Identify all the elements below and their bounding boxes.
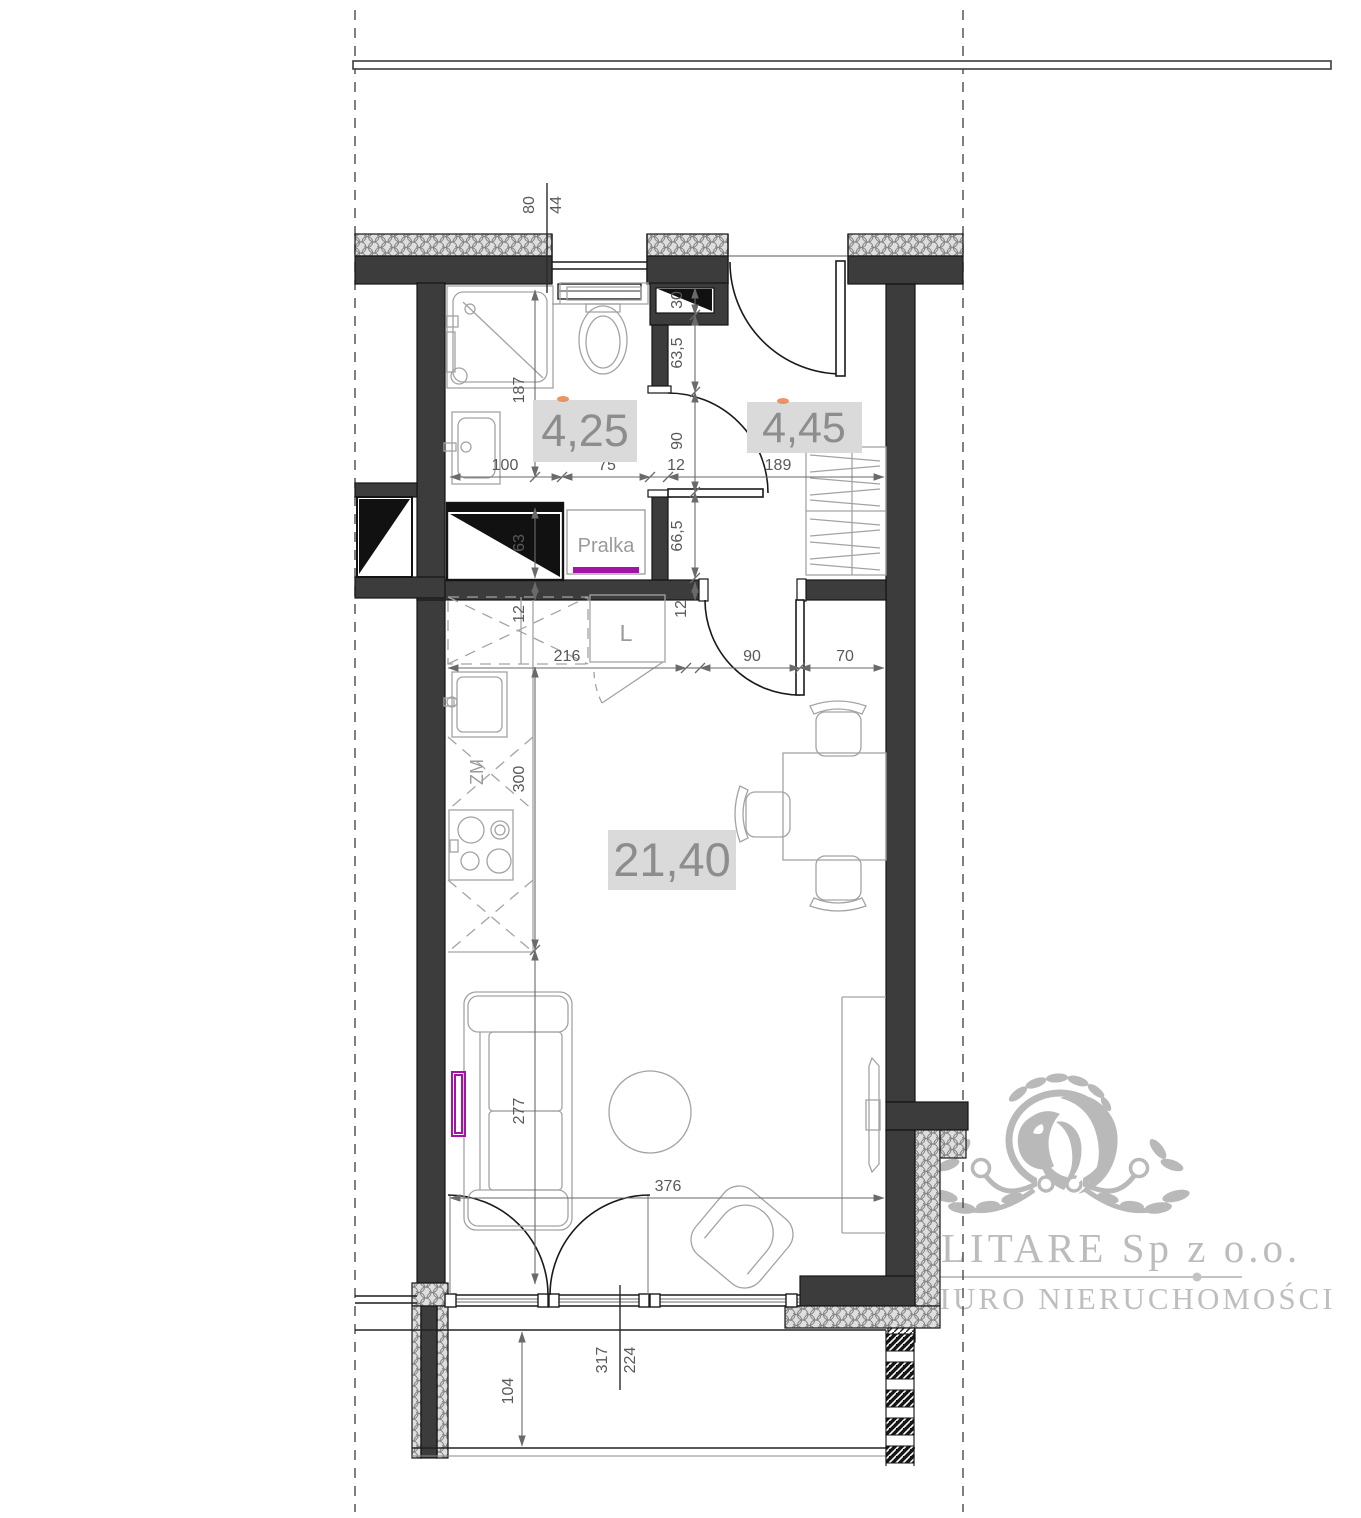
watermark-tagline: BIURO NIERUCHOMOŚCI — [916, 1281, 1336, 1316]
bathroom-window — [552, 234, 647, 304]
insulation-top-left — [355, 234, 552, 256]
insulation-balcony-left — [412, 1306, 421, 1458]
living-area: 21,40 — [613, 833, 731, 886]
stove — [449, 810, 513, 880]
dim-balcony-104: 104 — [500, 1378, 517, 1405]
upper-building-edge — [353, 61, 1331, 69]
room-labels: 4,25 4,45 21,40 — [533, 396, 862, 890]
insulation-right-lower — [915, 1130, 940, 1306]
insulation-top-right — [848, 234, 963, 256]
watermark-company: LITARE Sp z o.o. — [941, 1225, 1301, 1271]
wall-balcony-divider — [421, 1306, 437, 1458]
balcony-railing — [886, 1330, 914, 1466]
dim-bath-100: 100 — [492, 457, 519, 474]
entrance-door — [730, 261, 845, 376]
floor-plan-page: LITARE Sp z o.o. BIURO NIERUCHOMOŚCI — [0, 0, 1361, 1518]
dim-hall-665: 66,5 — [669, 520, 686, 551]
kitchen-sink — [444, 672, 507, 737]
dim-bath-12: 12 — [667, 457, 685, 474]
dim-chain-hall-v — [690, 288, 700, 600]
dim-balcony-376: 376 — [655, 1178, 682, 1195]
dim-living-door-90: 90 — [743, 648, 761, 665]
shaft-bath-top — [447, 503, 563, 512]
wall-bath-hall-upper — [652, 325, 668, 392]
wall-shaft-bottom — [355, 577, 445, 598]
fridge — [590, 595, 665, 703]
dining-table — [783, 753, 886, 860]
insulation-top-mid — [647, 234, 728, 256]
dim-living-70: 70 — [836, 648, 854, 665]
insulation-balcony-right — [437, 1306, 448, 1458]
wall-hall-south — [800, 580, 886, 600]
dim-hall-wall-12: 12 — [673, 600, 690, 618]
dim-shaft-63: 63 — [511, 534, 528, 552]
dim-balcony-224: 224 — [622, 1347, 639, 1374]
fridge-label: L — [620, 620, 633, 646]
armchair — [683, 1178, 801, 1296]
door-jamb-living-right — [797, 579, 806, 601]
wall-shaft-top — [355, 483, 417, 497]
dim-sofa-277: 277 — [511, 1098, 528, 1125]
shower — [446, 286, 553, 388]
dim-top-window-width: 80 — [521, 196, 538, 214]
washer-label: Pralka — [578, 535, 636, 557]
hall-area: 4,45 — [762, 404, 846, 452]
dim-balcony-317: 317 — [594, 1347, 611, 1374]
dim-hall-189: 189 — [765, 457, 792, 474]
wall-bath-south — [417, 580, 705, 600]
insulation-right-stub — [940, 1130, 966, 1158]
wall-bath-hall-lower — [652, 492, 668, 580]
bathroom-area: 4,25 — [541, 405, 629, 456]
wall-right-step — [886, 1102, 968, 1130]
wall-right-lower — [886, 1130, 915, 1285]
washer-accent-line — [573, 567, 639, 573]
entrance-opening — [728, 234, 848, 284]
dim-kitchen-216: 216 — [554, 648, 581, 665]
insulation-bottom-right — [785, 1306, 940, 1328]
coffee-table — [609, 1071, 691, 1153]
tv — [866, 1058, 880, 1172]
radiator — [452, 1072, 465, 1136]
dim-kitchen-wall-12: 12 — [511, 605, 528, 623]
dishwasher-label: ZM — [467, 759, 487, 785]
dining-chair-left — [735, 786, 790, 842]
wall-top-left — [355, 256, 552, 284]
door-jamb-bath-top — [648, 386, 671, 393]
wall-top-right — [848, 256, 963, 284]
balcony-french-doors — [448, 1195, 650, 1295]
wall-top-mid — [647, 256, 728, 284]
dim-chain-kitchen-h — [448, 663, 884, 673]
wardrobe — [806, 447, 886, 575]
dim-shaft-30: 30 — [669, 291, 686, 309]
dining-chair-bottom — [810, 856, 866, 911]
dining-chair-top — [810, 701, 866, 756]
dim-hall-635: 63,5 — [669, 337, 686, 368]
dim-bath-187: 187 — [511, 377, 528, 404]
wall-bottom-right — [800, 1276, 915, 1306]
floor-plan-drawing: LITARE Sp z o.o. BIURO NIERUCHOMOŚCI — [0, 0, 1361, 1518]
dim-bath-door-90: 90 — [669, 432, 686, 450]
insulation-balcony-top — [412, 1283, 448, 1306]
wall-right — [886, 284, 915, 1102]
toilet — [560, 283, 648, 374]
wall-left — [417, 283, 445, 1284]
dim-top-window-height: 44 — [548, 196, 565, 214]
dim-kitchen-300: 300 — [511, 766, 528, 793]
bathroom-label-marker — [557, 396, 569, 402]
watermark-lion-crest — [1007, 1073, 1118, 1194]
door-jamb-living-left — [699, 579, 708, 601]
